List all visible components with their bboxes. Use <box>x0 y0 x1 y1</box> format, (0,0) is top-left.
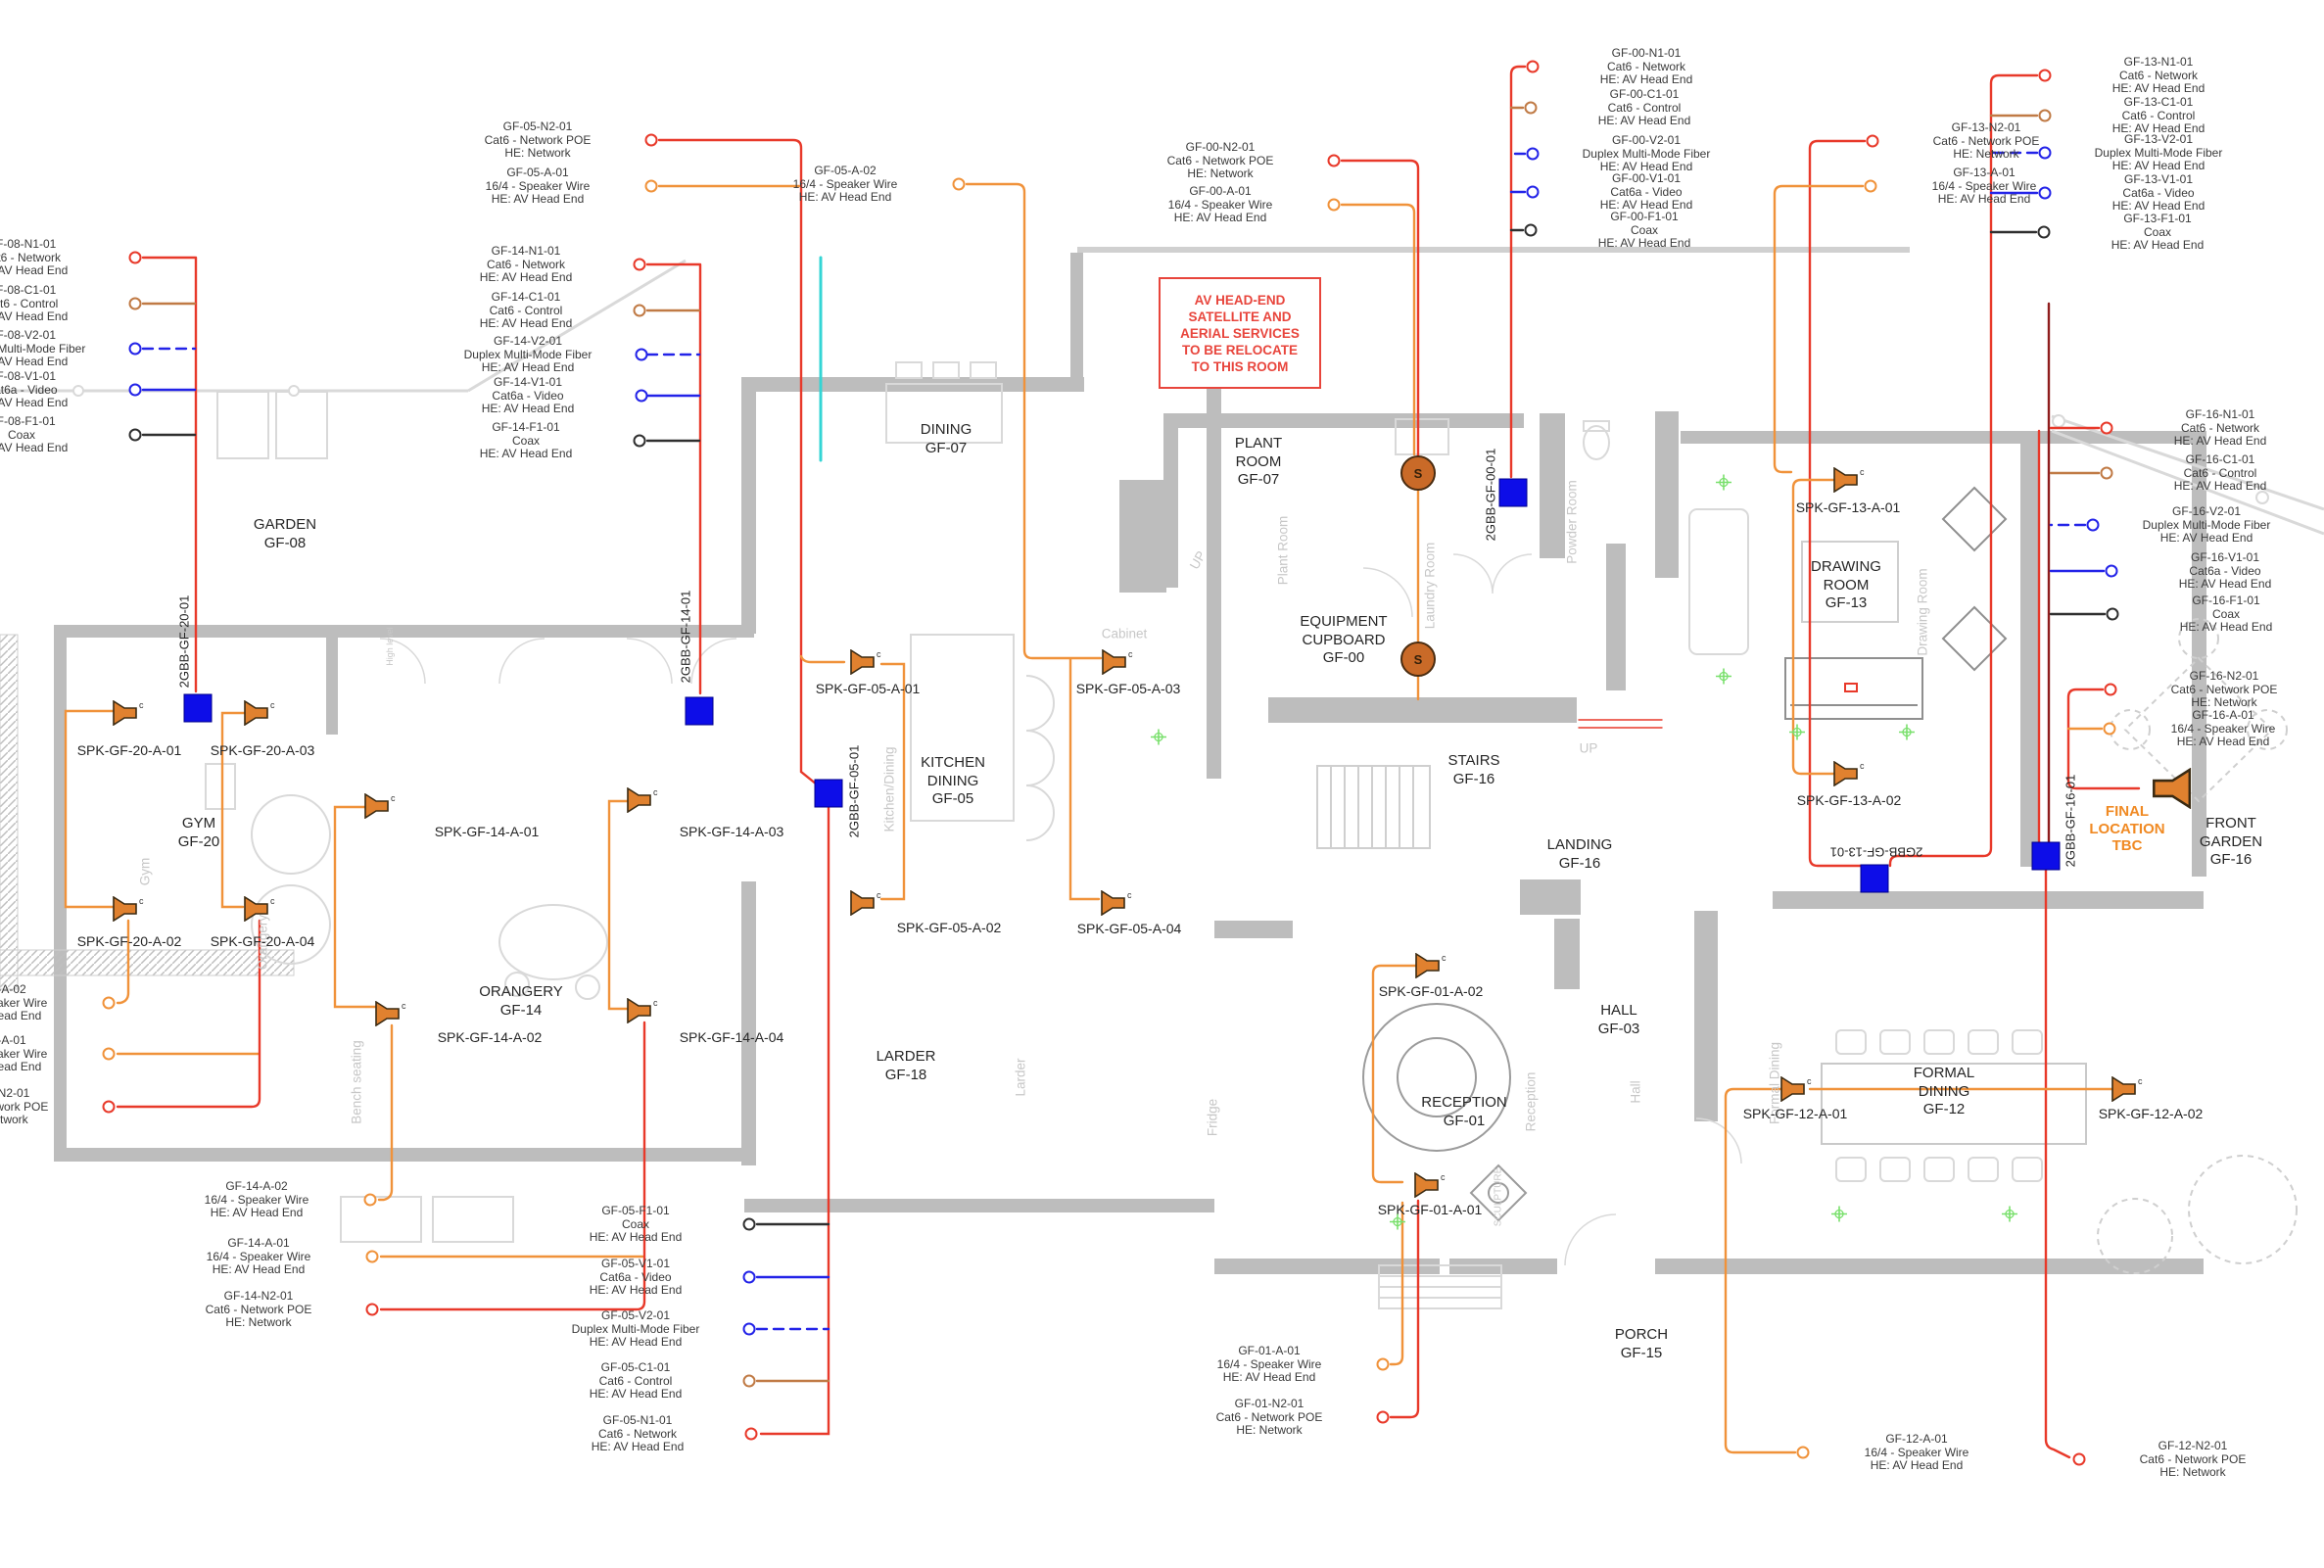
note-line: TO BE RELOCATE <box>1182 342 1298 358</box>
room-label-gf-18: LARDERGF-18 <box>877 1048 936 1084</box>
cable-node-icon <box>2101 467 2113 480</box>
speaker-label: SPK-GF-14-A-01 <box>435 824 540 839</box>
panel-2GBB-GF-16-01 <box>2032 842 2061 871</box>
cable-callout-text: GF-01-A-0116/4 - Speaker WireHE: AV Head… <box>1165 1345 1373 1385</box>
speaker-icon-SPK-GF-13-A-01: c <box>1832 467 1866 493</box>
cable-node-icon <box>1527 61 1540 73</box>
plan-annotation-text: Kitchen/Dining <box>882 746 897 832</box>
light-fixture-icon <box>1715 474 1732 497</box>
cable-callout-text: GF-05-A-0116/4 - Speaker WireHE: AV Head… <box>434 166 641 207</box>
cable-node-icon <box>743 1323 756 1336</box>
cable-callout-text: GF-00-V2-01Duplex Multi-Mode FiberHE: AV… <box>1542 134 1750 174</box>
ceiling-marker: c <box>653 998 658 1008</box>
plan-annotation-text: High level <box>385 627 395 666</box>
cable-node-icon <box>2101 422 2113 435</box>
speaker-label: SPK-GF-20-A-02 <box>77 933 182 949</box>
speaker-icon-SPK-GF-14-A-03: c <box>626 787 659 813</box>
plan-annotation-text: Powder Room <box>1565 480 1580 564</box>
cable-callout-text: GF-16-N2-01Cat6 - Network POEHE: Network <box>2120 670 2324 710</box>
speaker-icon-SPK-GF-20-A-03: c <box>243 700 276 726</box>
speaker-label: SPK-GF-20-A-04 <box>211 933 315 949</box>
cable-callout-text: GF-13-V1-01Cat6a - VideoHE: AV Head End <box>2055 173 2262 214</box>
note-line: TO THIS ROOM <box>1192 358 1289 375</box>
cable-node-icon <box>2107 608 2119 621</box>
panel-2GBB-GF-05-01 <box>815 780 843 808</box>
cable-node-icon <box>743 1218 756 1231</box>
cable-callout-text: GF-14-F1-01CoaxHE: AV Head End <box>422 421 630 461</box>
cable-node-icon <box>366 1251 379 1263</box>
cable-callout-text: GF-05-C1-01Cat6 - ControlHE: AV Head End <box>532 1361 739 1402</box>
cable-callout-text: GF-05-V2-01Duplex Multi-Mode FiberHE: AV… <box>532 1309 739 1350</box>
satellite-node-icon: S <box>1400 455 1436 491</box>
speaker-icon-SPK-GF-20-A-01: c <box>112 700 145 726</box>
light-fixture-icon <box>2001 1206 2018 1228</box>
cable-callout-text: GF-13-C1-01Cat6 - ControlHE: AV Head End <box>2055 96 2262 136</box>
ceiling-marker: c <box>139 896 144 906</box>
cable-node-icon <box>1865 180 1877 193</box>
plan-annotation-text: Gym <box>138 858 153 886</box>
cable-node-icon <box>1377 1358 1390 1371</box>
cable-node-icon <box>103 1101 116 1114</box>
cable-callout-text: GF-14-A-0116/4 - Speaker WireHE: AV Head… <box>155 1237 362 1277</box>
cable-callout-text: GF-13-F1-01CoaxHE: AV Head End <box>2054 213 2261 253</box>
cable-callout-text: GF-08-V1-01Cat6a - VideoHE: AV Head End <box>0 370 125 410</box>
cable-callout-text: GF-00-V1-01Cat6a - VideoHE: AV Head End <box>1542 172 1750 213</box>
cable-node-icon <box>1525 224 1538 237</box>
relocation-note: AV HEAD-END SATELLITE AND AERIAL SERVICE… <box>1159 277 1321 389</box>
panel-2GBB-GF-20-01 <box>184 694 213 723</box>
room-label-gf-13: DRAWINGROOMGF-13 <box>1811 558 1881 613</box>
cable-node-icon <box>103 1048 116 1061</box>
cable-callout-text: GF-14-C1-01Cat6 - ControlHE: AV Head End <box>422 291 630 331</box>
cable-node-icon <box>1328 155 1341 167</box>
plan-annotation-text: Larder <box>1014 1058 1028 1096</box>
plan-annotation-text: Fridge <box>1206 1099 1220 1136</box>
room-label-gf-07: DININGGF-07 <box>921 421 972 457</box>
room-label-gf-03: HALLGF-03 <box>1598 1002 1640 1038</box>
speaker-label: SPK-GF-05-A-03 <box>1076 681 1181 696</box>
cable-node-icon <box>129 252 142 264</box>
cable-node-icon <box>2104 723 2116 736</box>
note-line: AERIAL SERVICES <box>1180 325 1300 342</box>
cable-callout-text: GF-16-F1-01CoaxHE: AV Head End <box>2122 594 2324 635</box>
cable-callout-text: GF-20-A-0116/4 - Speaker WireHE: AV Head… <box>0 1034 99 1074</box>
room-label-gf-12: FORMALDININGGF-12 <box>1914 1065 1975 1119</box>
speaker-icon-SPK-GF-12-A-02: c <box>2111 1076 2144 1102</box>
cable-callout-text: GF-14-A-0216/4 - Speaker WireHE: AV Head… <box>153 1180 360 1220</box>
cable-node-icon <box>1525 102 1538 115</box>
plan-annotation-text: UP <box>1580 741 1598 756</box>
light-fixture-icon <box>1898 724 1916 746</box>
room-label-gf-16: STAIRSGF-16 <box>1447 752 1499 788</box>
cable-callout-text: GF-13-N1-01Cat6 - NetworkHE: AV Head End <box>2055 56 2262 96</box>
light-fixture-icon <box>1715 668 1732 690</box>
speaker-label: SPK-GF-05-A-02 <box>897 920 1002 935</box>
ceiling-marker: c <box>139 700 144 710</box>
ceiling-marker: c <box>2138 1076 2143 1086</box>
cable-node-icon <box>1527 148 1540 161</box>
room-label-gf-08: GARDENGF-08 <box>254 516 316 552</box>
plan-annotation-text: Hall <box>1629 1080 1643 1103</box>
cable-callout-text: GF-00-N2-01Cat6 - Network POEHE: Network <box>1116 141 1324 181</box>
cable-callout-text: GF-08-N1-01Cat6 - NetworkHE: AV Head End <box>0 238 125 278</box>
ceiling-marker: c <box>391 793 396 803</box>
cable-node-icon <box>2039 110 2052 122</box>
panel-2GBB-GF-14-01 <box>686 697 714 726</box>
ceiling-marker: c <box>402 1001 406 1011</box>
cable-callout-text: GF-05-N1-01Cat6 - NetworkHE: AV Head End <box>534 1414 741 1454</box>
speaker-label: SPK-GF-12-A-01 <box>1743 1106 1848 1121</box>
speaker-icon-SPK-GF-05-A-04: c <box>1100 890 1133 916</box>
cable-node-icon <box>1867 135 1879 148</box>
cable-node-icon <box>1527 186 1540 199</box>
note-line: AV HEAD-END <box>1195 292 1286 309</box>
cable-callout-text: GF-14-V1-01Cat6a - VideoHE: AV Head End <box>424 376 632 416</box>
speaker-label: SPK-GF-13-A-02 <box>1797 792 1902 808</box>
note-line: SATELLITE AND <box>1189 309 1292 325</box>
room-label-gf-01: RECEPTIONGF-01 <box>1421 1094 1507 1130</box>
cable-node-icon <box>2039 187 2052 200</box>
plan-annotation-text: SCULPTURE <box>1494 1167 1504 1227</box>
speaker-icon-SPK-GF-14-A-02: c <box>374 1001 407 1026</box>
cable-node-icon <box>2038 226 2051 239</box>
plan-annotation-text: Cabinet <box>1102 627 1148 641</box>
ceiling-marker: c <box>877 890 881 900</box>
speaker-label: SPK-GF-14-A-04 <box>680 1029 784 1045</box>
cable-callout-text: GF-16-V2-01Duplex Multi-Mode FiberHE: AV… <box>2103 505 2310 546</box>
speaker-icon-SPK-GF-14-A-01: c <box>363 793 397 819</box>
room-label-gf-15: PORCHGF-15 <box>1615 1326 1668 1362</box>
plan-annotation-text: Reception <box>1524 1072 1539 1132</box>
speaker-label: SPK-GF-13-A-01 <box>1796 499 1901 515</box>
cable-callout-text: GF-01-N2-01Cat6 - Network POEHE: Network <box>1165 1398 1373 1438</box>
cable-node-icon <box>2087 519 2100 532</box>
panel-label: 2GBB-GF-16-01 <box>2063 775 2078 868</box>
cable-callout-text: GF-05-F1-01CoaxHE: AV Head End <box>532 1205 739 1245</box>
plan-annotation-text: Drawing Room <box>1916 568 1930 655</box>
floor-plan-canvas: AV HEAD-END SATELLITE AND AERIAL SERVICE… <box>0 0 2324 1568</box>
speaker-icon-SPK-GF-01-A-01: c <box>1413 1172 1447 1198</box>
ceiling-marker: c <box>1128 649 1133 659</box>
cable-callout-text: GF-16-N1-01Cat6 - NetworkHE: AV Head End <box>2116 408 2324 449</box>
speaker-icon-final-location <box>2140 768 2193 809</box>
cable-callout-text: GF-16-V1-01Cat6a - VideoHE: AV Head End <box>2121 551 2324 592</box>
cable-callout-text: GF-14-N2-01Cat6 - Network POEHE: Network <box>155 1290 362 1330</box>
room-label-gf-16: FRONTGARDENGF-16 <box>2200 815 2262 870</box>
ceiling-marker: c <box>1442 953 1447 963</box>
cable-node-icon <box>645 180 658 193</box>
speaker-label: SPK-GF-20-A-01 <box>77 742 182 758</box>
cable-callout-text: GF-16-C1-01Cat6 - ControlHE: AV Head End <box>2116 453 2324 494</box>
speaker-label: SPK-GF-01-A-02 <box>1379 983 1484 999</box>
cable-node-icon <box>103 997 116 1010</box>
cable-node-icon <box>129 429 142 442</box>
cable-node-icon <box>636 349 648 361</box>
cable-node-icon <box>2106 565 2118 578</box>
final-location-line: TBC <box>2089 837 2164 855</box>
speaker-icon-SPK-GF-12-A-01: c <box>1779 1076 1813 1102</box>
ceiling-marker: c <box>1860 467 1865 477</box>
speaker-icon-SPK-GF-13-A-02: c <box>1832 761 1866 786</box>
ceiling-marker: c <box>1807 1076 1812 1086</box>
ceiling-marker: c <box>1441 1172 1446 1182</box>
cable-callout-text: GF-08-C1-01Cat6 - ControlHE: AV Head End <box>0 284 125 324</box>
speaker-label: SPK-GF-05-A-04 <box>1077 921 1182 936</box>
cable-node-icon <box>129 298 142 310</box>
cable-callout-text: GF-08-V2-01Duplex Multi-Mode FiberHE: AV… <box>0 329 125 369</box>
cable-callout-text: GF-14-N1-01Cat6 - NetworkHE: AV Head End <box>422 245 630 285</box>
final-location-line: LOCATION <box>2089 821 2164 838</box>
cable-node-icon <box>2039 70 2052 82</box>
cable-node-icon <box>2073 1453 2086 1466</box>
cable-node-icon <box>1328 199 1341 212</box>
cable-callout-text: GF-05-V1-01Cat6a - VideoHE: AV Head End <box>532 1258 739 1298</box>
panel-2GBB-GF-00-01 <box>1499 479 1528 507</box>
cable-callout-text: GF-12-A-0116/4 - Speaker WireHE: AV Head… <box>1813 1433 2020 1473</box>
cable-node-icon <box>953 178 966 191</box>
speaker-icon-SPK-GF-01-A-02: c <box>1414 953 1447 978</box>
cable-node-icon <box>129 384 142 397</box>
annotation-overlay: AV HEAD-END SATELLITE AND AERIAL SERVICE… <box>0 0 2324 1568</box>
light-fixture-icon <box>1788 724 1806 746</box>
speaker-label: SPK-GF-14-A-02 <box>438 1029 543 1045</box>
cable-node-icon <box>366 1304 379 1316</box>
cable-callout-text: GF-00-C1-01Cat6 - ControlHE: AV Head End <box>1541 88 1748 128</box>
cable-node-icon <box>645 134 658 147</box>
cable-callout-text: GF-20-A-0216/4 - Speaker WireHE: AV Head… <box>0 983 99 1023</box>
panel-label: 2GBB-GF-14-01 <box>679 591 693 684</box>
ceiling-marker: c <box>1860 761 1865 771</box>
speaker-label: SPK-GF-05-A-01 <box>816 681 921 696</box>
speaker-label: SPK-GF-20-A-03 <box>211 742 315 758</box>
speaker-icon-SPK-GF-20-A-02: c <box>112 896 145 922</box>
panel-label: 2GBB-GF-20-01 <box>177 595 192 689</box>
plan-annotation-text: Bench seating <box>350 1040 364 1124</box>
cable-callout-text: GF-13-V2-01Duplex Multi-Mode FiberHE: AV… <box>2055 133 2262 173</box>
cable-node-icon <box>745 1428 758 1441</box>
room-label-gf-05: KITCHENDININGGF-05 <box>921 754 985 809</box>
speaker-icon-SPK-GF-14-A-04: c <box>626 998 659 1023</box>
cable-node-icon <box>634 435 646 448</box>
plan-annotation-text: Laundry Room <box>1423 543 1438 630</box>
panel-2GBB-GF-13-01 <box>1861 865 1889 893</box>
panel-label: 2GBB-GF-00-01 <box>1484 449 1498 542</box>
ceiling-marker: c <box>270 896 275 906</box>
cable-callout-text: GF-05-A-0216/4 - Speaker WireHE: AV Head… <box>741 165 949 205</box>
cable-node-icon <box>743 1375 756 1388</box>
light-fixture-icon <box>1389 1213 1406 1236</box>
speaker-icon-SPK-GF-05-A-01: c <box>849 649 882 675</box>
cable-node-icon <box>1797 1447 1810 1459</box>
cable-node-icon <box>634 305 646 317</box>
cable-node-icon <box>129 343 142 356</box>
cable-callout-text: GF-16-A-0116/4 - Speaker WireHE: AV Head… <box>2119 709 2324 749</box>
room-label-gf-07: PLANTROOMGF-07 <box>1235 435 1282 490</box>
room-label-gf-20: GYMGF-20 <box>178 815 220 851</box>
light-fixture-icon <box>1830 1206 1848 1228</box>
speaker-icon-SPK-GF-20-A-04: c <box>243 896 276 922</box>
cable-node-icon <box>634 259 646 271</box>
room-label-gf-00: EQUIPMENTCUPBOARDGF-00 <box>1300 613 1387 668</box>
light-fixture-icon <box>1150 729 1167 751</box>
cable-node-icon <box>636 390 648 403</box>
speaker-label: SPK-GF-14-A-03 <box>680 824 784 839</box>
ceiling-marker: c <box>653 787 658 797</box>
cable-callout-text: GF-00-N1-01Cat6 - NetworkHE: AV Head End <box>1542 47 1750 87</box>
ceiling-marker: c <box>877 649 881 659</box>
cable-callout-text: GF-12-N2-01Cat6 - Network POEHE: Network <box>2089 1440 2297 1480</box>
final-location-note: FINAL LOCATION TBC <box>2089 803 2164 855</box>
cable-callout-text: GF-00-A-0116/4 - Speaker WireHE: AV Head… <box>1116 185 1324 225</box>
cable-callout-text: GF-05-N2-01Cat6 - Network POEHE: Network <box>434 120 641 161</box>
ceiling-marker: c <box>270 700 275 710</box>
speaker-icon-SPK-GF-05-A-03: c <box>1101 649 1134 675</box>
satellite-node-icon: S <box>1400 641 1436 677</box>
room-label-gf-16: LANDINGGF-16 <box>1547 836 1613 873</box>
ceiling-marker: c <box>1127 890 1132 900</box>
cable-node-icon <box>364 1194 377 1207</box>
cable-node-icon <box>2105 684 2117 696</box>
cable-node-icon <box>2039 147 2052 160</box>
plan-annotation-text: UP <box>1187 548 1209 572</box>
plan-annotation-text: Plant Room <box>1276 516 1291 586</box>
cable-callout-text: GF-00-F1-01CoaxHE: AV Head End <box>1541 211 1748 251</box>
speaker-label: SPK-GF-12-A-02 <box>2099 1106 2204 1121</box>
panel-label: 2GBB-GF-05-01 <box>847 745 862 838</box>
cable-node-icon <box>1377 1411 1390 1424</box>
cable-callout-text: GF-20-N2-01Cat6 - Network POEHE: Network <box>0 1087 99 1127</box>
speaker-icon-SPK-GF-05-A-02: c <box>849 890 882 916</box>
panel-label: 2GBB-GF-13-01 <box>1830 845 1923 860</box>
cable-node-icon <box>743 1271 756 1284</box>
room-label-gf-14: ORANGERYGF-14 <box>479 983 563 1020</box>
cable-callout-text: GF-08-F1-01CoaxHE: AV Head End <box>0 415 125 455</box>
cable-callout-text: GF-14-V2-01Duplex Multi-Mode FiberHE: AV… <box>424 335 632 375</box>
